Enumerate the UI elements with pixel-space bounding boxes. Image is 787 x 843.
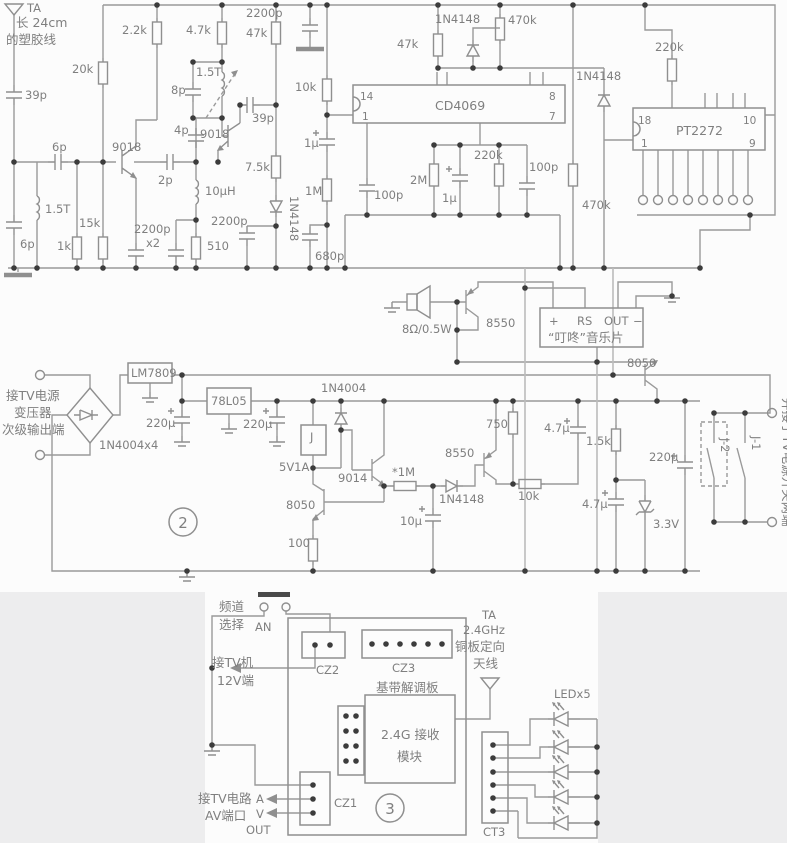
label-d2: 1N4148 (435, 12, 480, 26)
label-c100p-b: 100p (529, 160, 558, 174)
label-c220u-a: 220μ (146, 416, 176, 430)
an-button (258, 592, 290, 611)
section-receiver: TA 长 24cm 的塑胶线 39p 6p 1.5T 6p 1k 15k 20k… (4, 1, 775, 275)
pin-8: 8 (549, 91, 556, 103)
label-r470k-a: 470k (508, 13, 537, 27)
label-r47k-b: 47k (397, 37, 419, 51)
music-chip-minus: − (633, 314, 643, 328)
relay-name: J (309, 430, 313, 444)
label-relay-rating: 5V1A (279, 460, 310, 474)
label-l15t-2: 1.5T (196, 65, 222, 79)
label-x2: x2 (146, 236, 160, 250)
wires (212, 611, 597, 838)
pin-1: 1 (362, 111, 369, 123)
label-a: A (256, 792, 264, 806)
antenna-24g-icon (481, 678, 499, 689)
label-r75k: 7.5k (245, 160, 270, 174)
label-r47k-left: 4.7k (186, 23, 211, 37)
regulator-78l05-name: 78L05 (211, 394, 247, 408)
label-antenna-note1: 长 24cm (16, 15, 67, 30)
label-c10u: 10μ (400, 514, 423, 528)
label-av-1: 接TV电路 (198, 791, 252, 806)
label-c2p: 2p (158, 173, 173, 187)
label-r1k: 1k (57, 239, 71, 253)
label-c680p: 680p (315, 249, 344, 263)
label-r22k: 2.2k (122, 23, 147, 37)
label-q4: 8050 (627, 356, 656, 370)
label-d1: 1N4148 (287, 196, 301, 241)
section-2-number: 2 (178, 514, 188, 532)
module-name-1: 2.4G 接收 (381, 727, 440, 742)
label-v: V (256, 807, 264, 821)
label-j2: J-2 (718, 437, 732, 452)
label-c6p-series: 6p (52, 140, 67, 154)
label-q3: 8550 (486, 316, 515, 330)
label-r220k-b: 220k (655, 40, 684, 54)
label-c39p2: 39p (252, 111, 274, 125)
label-c8p: 8p (171, 83, 186, 97)
circuit-schematic: TA 长 24cm 的塑胶线 39p 6p 1.5T 6p 1k 15k 20k… (0, 0, 787, 843)
label-r750: 750 (486, 417, 508, 431)
antenna-icon (5, 4, 23, 15)
label-c6p-bottom: 6p (20, 237, 35, 251)
connector-cz1-name: CZ1 (334, 796, 357, 810)
led-array (548, 702, 600, 830)
junction-dots (11, 2, 753, 271)
label-j1: J-1 (749, 435, 763, 450)
label-q7: 8550 (445, 446, 474, 460)
music-chip-out: OUT (604, 314, 629, 328)
section-av-board: 频道 选择 AN CZ2 CZ3 基带解调板 2.4G 接收 模块 接TV机 1… (198, 592, 600, 839)
label-ta2-type: 铜板定向 (455, 639, 505, 654)
label-ta2: TA (481, 608, 496, 622)
music-chip-name: “叮咚”音乐片 (548, 330, 623, 345)
label-q2: 9018 (200, 127, 229, 141)
label-l10uh: 10μH (205, 184, 236, 198)
ic-pt2272-name: PT2272 (676, 123, 723, 138)
label-c1u-a: 1μ (304, 136, 319, 150)
label-c47u-b: 4.7μ (582, 497, 608, 511)
connector-cz3-name: CZ3 (392, 661, 415, 675)
label-q5: 8050 (286, 498, 315, 512)
label-ta2-ant: 天线 (473, 656, 499, 671)
pin-9: 9 (749, 138, 756, 150)
section-3-number: 3 (385, 800, 395, 818)
label-bridge: 1N4004x4 (99, 438, 158, 452)
label-r510: 510 (207, 239, 229, 253)
label-c220u-c: 220μ (649, 450, 679, 464)
label-r2m: 2M (410, 173, 427, 187)
label-ta: TA (26, 1, 41, 15)
connector-cz2-name: CZ2 (316, 663, 339, 677)
label-r15k-b: 1.5k (586, 434, 611, 448)
label-q1: 9018 (112, 140, 141, 154)
label-c2200p-t: 2200p (246, 6, 283, 20)
label-input3: 次级输出端 (2, 422, 65, 437)
label-speaker: 8Ω/0.5W (402, 322, 452, 336)
pin-1b: 1 (641, 138, 648, 150)
music-chip-plus: + (549, 314, 559, 328)
label-r20k: 20k (72, 62, 94, 76)
connector-cz2 (302, 632, 345, 658)
module-name-2: 模块 (397, 749, 423, 764)
label-r470k-b: 470k (582, 198, 611, 212)
label-r47k: 47k (246, 26, 268, 40)
label-input1: 接TV电源 (6, 388, 60, 403)
label-c4p: 4p (174, 123, 189, 137)
label-c39p: 39p (25, 88, 47, 102)
label-ta2-freq: 2.4GHz (463, 623, 505, 637)
transistor-q3-8550 (467, 288, 474, 295)
label-an: AN (255, 620, 271, 634)
label-zener: 3.3V (653, 517, 679, 531)
label-switch-note: 并接于TV电源开关两端 (780, 398, 787, 527)
regulator-lm7809-name: LM7809 (131, 366, 177, 380)
label-c2200p-b: 2200p (211, 214, 248, 228)
label-out: OUT (246, 823, 271, 837)
label-r15k: 15k (79, 216, 101, 230)
label-channel-2: 选择 (219, 617, 245, 632)
label-r10k-b: 10k (518, 489, 540, 503)
label-c220u-b: 220μ (243, 417, 273, 431)
section-power: 8Ω/0.5W 8550 + RS OUT − “叮咚”音乐片 8050 接TV… (2, 268, 787, 581)
connector-cz3 (362, 630, 452, 658)
label-antenna-note2: 的塑胶线 (6, 32, 57, 47)
label-l15t-1: 1.5T (45, 202, 71, 216)
label-r220k-a: 220k (474, 148, 503, 162)
label-d4: 1N4004 (321, 381, 366, 395)
pin-14: 14 (360, 91, 374, 103)
label-c100p-a: 100p (374, 188, 403, 202)
label-tv12-1: 接TV机 (212, 655, 254, 670)
schematic-page: TA 长 24cm 的塑胶线 39p 6p 1.5T 6p 1k 15k 20k… (0, 0, 787, 843)
connector-ct3-name: CT3 (483, 825, 505, 839)
label-r10k: 10k (295, 80, 317, 94)
ic-cd4069-name: CD4069 (435, 98, 485, 113)
pin-18: 18 (638, 115, 651, 127)
label-r1m-star: *1M (392, 465, 415, 479)
label-av-2: AV端口 (205, 808, 246, 823)
label-c2200p-x2: 2200p (134, 222, 171, 236)
label-c47u-a: 4.7μ (544, 421, 570, 435)
relay-box (301, 425, 326, 455)
label-r1m: 1M (305, 184, 322, 198)
label-tv12-2: 12V端 (217, 673, 254, 688)
label-r100: 100 (288, 536, 310, 550)
speaker-icon (407, 286, 430, 318)
label-q6: 9014 (338, 471, 367, 485)
pin-10: 10 (743, 115, 756, 127)
module-pin-grid (338, 706, 364, 775)
music-chip-rs: RS (577, 314, 592, 328)
label-d3: 1N4148 (576, 69, 621, 83)
label-input2: 变压器 (14, 405, 52, 420)
label-d5: 1N4148 (439, 492, 484, 506)
board-name: 基带解调板 (376, 680, 439, 695)
label-channel-1: 频道 (219, 599, 245, 614)
label-ledx5: LEDx5 (554, 687, 591, 701)
bridge-rectifier (67, 388, 113, 443)
label-c1u-b: 1μ (442, 191, 457, 205)
pin-7: 7 (549, 111, 556, 123)
